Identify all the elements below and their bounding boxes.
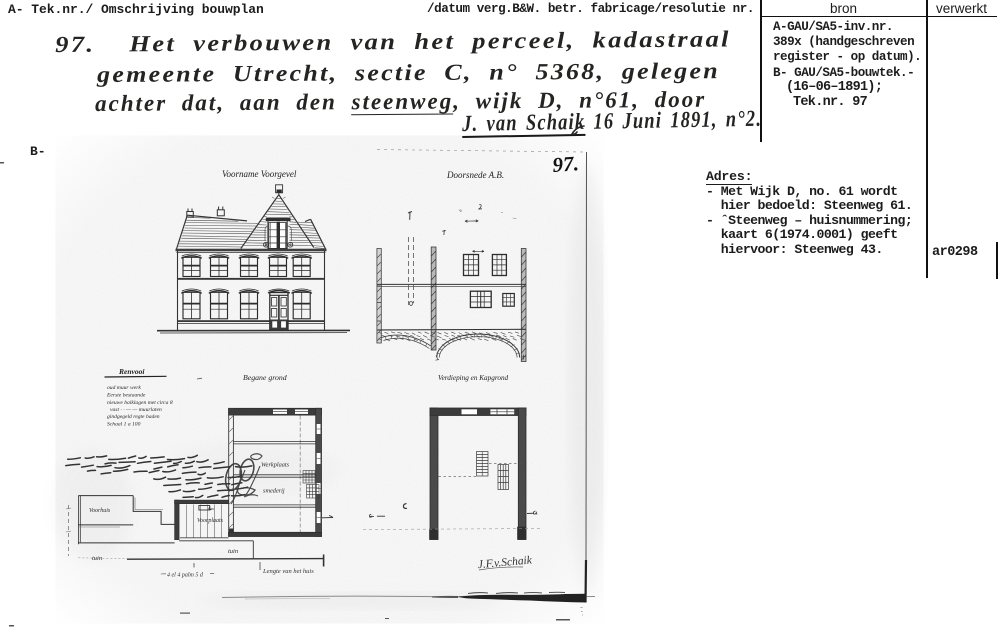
svg-text:Renvooi: Renvooi	[118, 367, 145, 376]
svg-text:Lengte van het huis: Lengte van het huis	[262, 568, 314, 575]
svg-text:Verdieping en Kapgrond: Verdieping en Kapgrond	[438, 374, 509, 382]
svg-text:tuin: tuin	[92, 555, 102, 562]
svg-text:Voorhuis: Voorhuis	[89, 508, 111, 514]
svg-text:nieuwe balklagen met circa 8: nieuwe balklagen met circa 8	[107, 400, 173, 406]
svg-text:Voorplaats: Voorplaats	[197, 518, 224, 524]
svg-text:Begane grond: Begane grond	[243, 373, 287, 382]
svg-text:smederij: smederij	[263, 488, 285, 495]
svg-text:gindgegeld regte baden: gindgegeld regte baden	[107, 414, 160, 420]
svg-text:Werkplaats: Werkplaats	[261, 462, 290, 469]
svg-text:vast · · — — muurlaten: vast · · — — muurlaten	[110, 407, 162, 413]
svg-text:4 el 4 palm 5 d: 4 el 4 palm 5 d	[167, 572, 204, 579]
svg-text:Eerste bestaande: Eerste bestaande	[106, 393, 146, 399]
svg-text:Schaal 1 a 100: Schaal 1 a 100	[107, 422, 141, 428]
svg-text:tuin: tuin	[228, 548, 238, 555]
svg-text:oud muur werk: oud muur werk	[107, 385, 141, 391]
svg-text:97.: 97.	[552, 151, 580, 177]
svg-text:Voorname Voorgevel: Voorname Voorgevel	[222, 169, 297, 179]
svg-text:Doorsnede A.B.: Doorsnede A.B.	[446, 170, 504, 180]
